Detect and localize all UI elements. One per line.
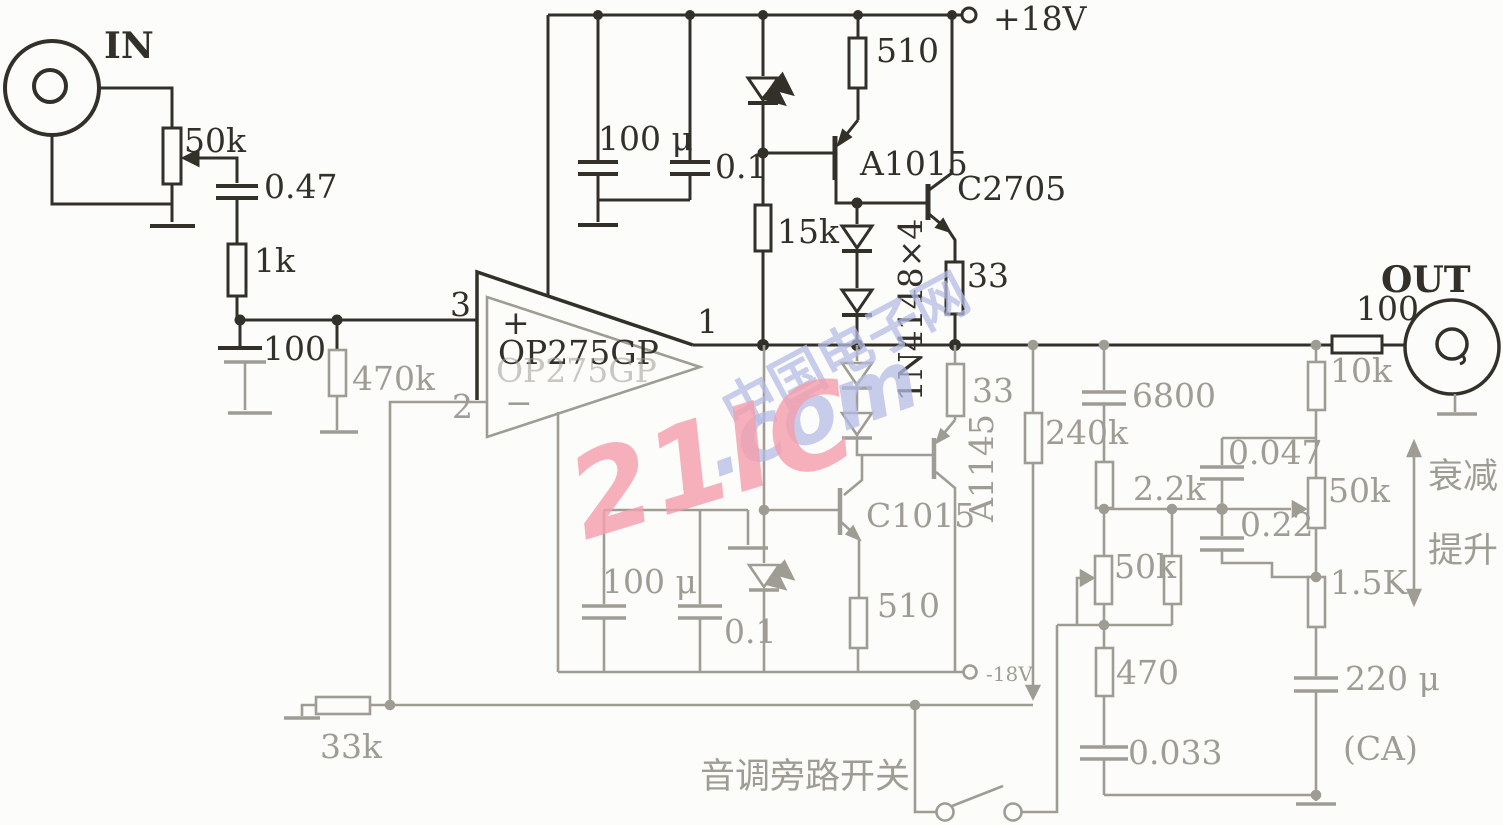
pot-bass-label: 50k	[1114, 547, 1177, 586]
out-jack-ground	[1437, 394, 1477, 414]
q-a1145-label: A1145	[962, 414, 1001, 523]
bypass-cap-top	[670, 15, 710, 200]
r-treble-out-label: 1.5K	[1330, 563, 1408, 602]
tone-bypass-switch-label: 音调旁路开关	[700, 757, 910, 797]
pin3-label: 3	[450, 285, 471, 324]
led-top	[748, 15, 791, 153]
cap-bypass-top-label: 0.1	[715, 147, 767, 186]
q-c1015-label: C1015	[866, 496, 975, 535]
r-bass-label: 2.2k	[1133, 469, 1206, 508]
input-coupling-cap	[216, 186, 258, 244]
attenuate-label: 衰减	[1428, 457, 1498, 497]
input-shunt-cap-lower	[224, 362, 272, 413]
cap-out-ground-label: 220 μ	[1345, 659, 1440, 698]
cap-bulk-top-label: 100 μ	[598, 119, 693, 158]
cap-in-label: 0.47	[264, 167, 337, 206]
ground-leg-resistor	[284, 697, 390, 718]
in-label: IN	[104, 25, 154, 67]
cap-bass-out-label: 0.033	[1128, 733, 1222, 772]
q-a1015-label: A1015	[859, 144, 968, 183]
pin2-label: 2	[452, 387, 473, 426]
feedback-resistor	[1025, 345, 1042, 698]
schematic-page: IN 50k 0.47 1k 100 470k 3 2 1 + − OP275G…	[0, 0, 1503, 825]
pin1-label: 1	[697, 302, 718, 341]
cap-treble-mid-label: 0.22	[1240, 505, 1313, 544]
r-series-in-label: 1k	[254, 241, 296, 280]
r-feedback-label: 240k	[1045, 413, 1129, 452]
cap-bass-in-label: 6800	[1132, 376, 1216, 415]
channel-label: (CA)	[1343, 729, 1418, 768]
main-signal-path	[5, 8, 1499, 400]
r-emitter-top-label: 510	[876, 31, 939, 70]
output-resistor-bottom	[947, 345, 964, 416]
bulk-cap-top	[578, 15, 618, 200]
cap-treble-in-label: 0.047	[1228, 433, 1322, 472]
out-jack	[1405, 300, 1499, 394]
r-led-bias-label: 15k	[777, 212, 840, 251]
emitter-resistor-top	[849, 15, 866, 88]
r-emitter-bot-label: 510	[877, 586, 940, 625]
inverting-input-wire	[390, 402, 487, 705]
cap-shunt-in-label: 100	[263, 329, 326, 368]
q-c2705-label: C2705	[957, 169, 1066, 208]
r-out-bot-label: 33	[972, 371, 1014, 410]
r-out-top-label: 33	[967, 256, 1009, 295]
negative-rail-label: -18V	[986, 662, 1033, 686]
opamp-name-ghost: OP275GP	[496, 351, 657, 390]
r-isolation-out-label: 100	[1356, 289, 1419, 328]
positive-rail-label: +18V	[993, 0, 1088, 38]
boost-label: 提升	[1428, 531, 1498, 571]
cap-bulk-bot-label: 100 μ	[602, 562, 697, 601]
cap-bypass-bot-label: 0.1	[724, 612, 776, 651]
attenuate-boost-arrow	[1408, 442, 1420, 604]
r-bass-lower-label: 470	[1116, 653, 1179, 692]
input-series-resistor	[228, 244, 246, 320]
emitter-resistor-bottom	[850, 598, 867, 672]
tone-bypass-switch	[915, 625, 1057, 821]
positive-terminal	[962, 8, 976, 22]
negative-terminal	[964, 666, 977, 679]
bass-pot-wiper	[1077, 571, 1093, 625]
r-ground-leg-label: 33k	[320, 727, 383, 766]
r-treble-in-label: 10k	[1330, 351, 1393, 390]
pot-treble-label: 50k	[1328, 471, 1391, 510]
pot-in-label: 50k	[184, 121, 247, 160]
r-bias-label: 470k	[352, 359, 436, 398]
tone-control-schematic: IN 50k 0.47 1k 100 470k 3 2 1 + − OP275G…	[0, 0, 1503, 825]
transistor-a1145	[934, 416, 955, 672]
